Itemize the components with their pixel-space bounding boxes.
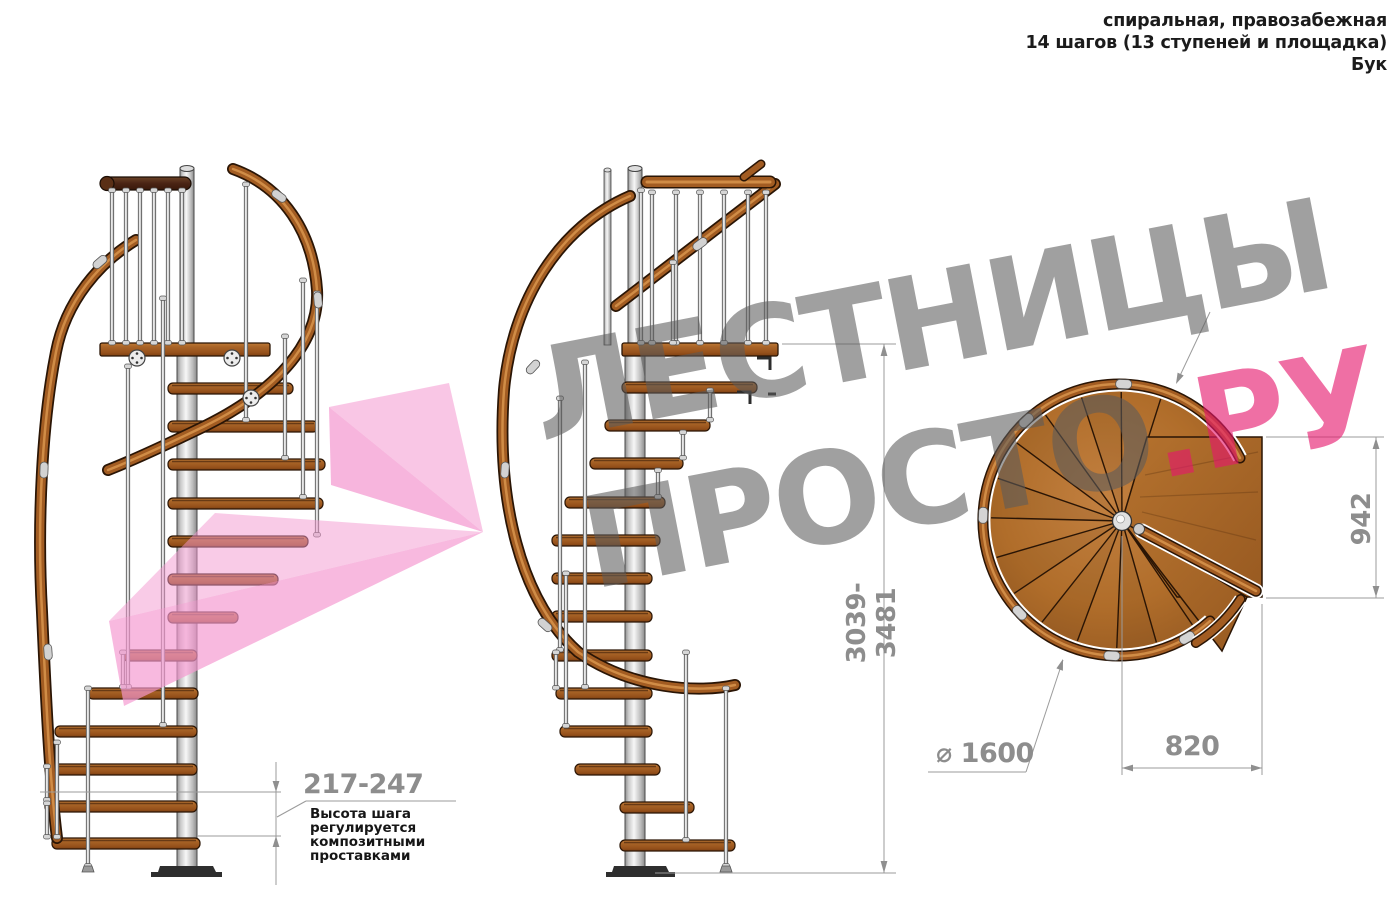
mount-flange [224, 350, 240, 366]
baluster-foot [720, 866, 732, 872]
mount-flange [129, 350, 145, 366]
note-line: композитными [310, 835, 425, 849]
rail-sleeve [43, 644, 52, 661]
step [45, 764, 197, 775]
rail-sleeve [500, 462, 509, 479]
step [575, 764, 660, 775]
diameter-label: ⌀ 1600 [936, 738, 1034, 769]
step [560, 726, 652, 737]
step-height-label: 217-247 [303, 769, 423, 800]
baluster-foot [82, 866, 94, 872]
mount-flange [243, 390, 259, 406]
base-plate [151, 866, 222, 877]
step [620, 802, 694, 813]
rail-sleeve [313, 292, 322, 309]
baluster [282, 334, 289, 460]
landing-width-label: 820 [1156, 731, 1228, 762]
landing-length-label: 942 [1347, 479, 1377, 559]
drawing-canvas: ЛЕСТНИЦЫ ПРОСТО.РУ спиральная, правозабе… [0, 0, 1400, 914]
step [168, 498, 323, 509]
step [45, 801, 197, 812]
step [620, 840, 735, 851]
total-height-label: 3039-3481 [842, 548, 902, 698]
step [52, 838, 200, 849]
step [55, 726, 197, 737]
baluster [151, 188, 158, 345]
rail-sleeve [40, 462, 49, 478]
step-count: 14 шагов (13 ступеней и площадка) [1026, 32, 1387, 54]
note-line: Высота шага [310, 807, 425, 821]
platform-top-rail [647, 164, 770, 182]
stair-type: спиральная, правозабежная [1026, 10, 1387, 32]
baluster [165, 188, 172, 345]
base-plate [606, 866, 675, 877]
baluster [137, 188, 144, 345]
step-height-note: Высота шага регулируется композитными пр… [310, 807, 425, 863]
step [556, 688, 652, 699]
note-line: регулируется [310, 821, 425, 835]
baluster [123, 188, 130, 345]
note-line: проставками [310, 849, 425, 863]
title-block: спиральная, правозабежная 14 шагов (13 с… [1026, 10, 1387, 76]
material: Бук [1026, 54, 1387, 76]
